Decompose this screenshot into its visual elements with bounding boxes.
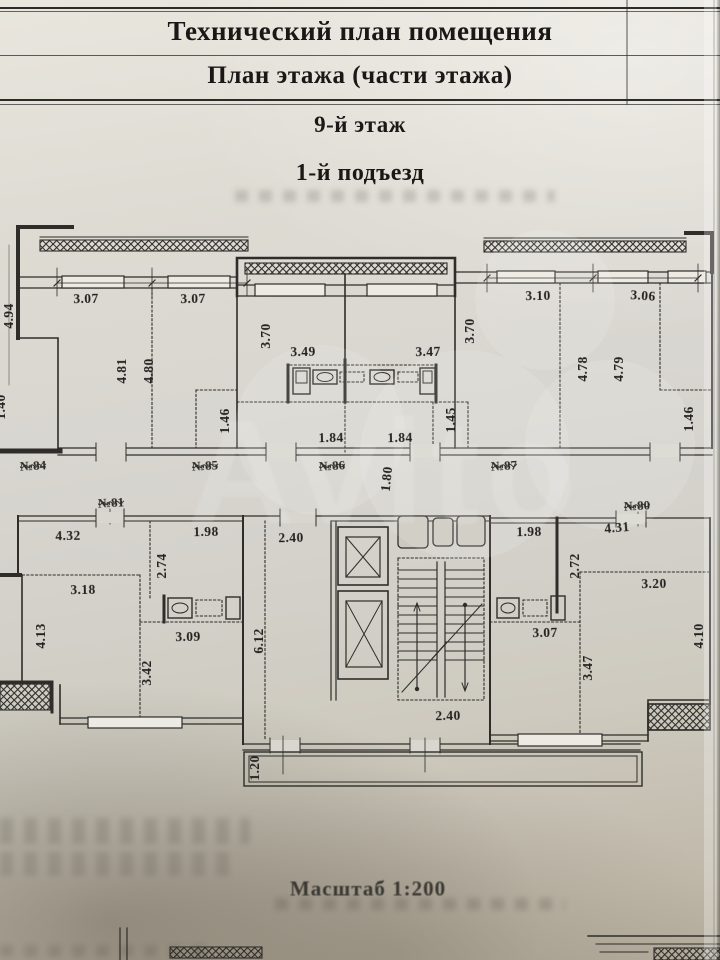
bathroom-fixtures-right: [497, 596, 565, 620]
balcony-strip-left: [40, 237, 248, 251]
window: [598, 271, 648, 283]
dim-label: 3.70: [462, 318, 478, 343]
dim-label: 4.78: [575, 356, 591, 381]
apartment-number: №87: [491, 457, 518, 474]
dim-label: 1.46: [217, 408, 233, 433]
apartment-number: №81: [98, 494, 125, 511]
elevator-shaft-a: [338, 527, 388, 585]
dim-label: 3.20: [641, 576, 667, 592]
dim-label: 3.06: [630, 287, 656, 305]
floor-plan-drawing: [0, 0, 720, 960]
dim-label: 6.12: [251, 628, 267, 653]
dim-label: 3.07: [180, 291, 206, 307]
dim-label: 3.42: [139, 660, 155, 685]
dim-label: 1.40: [0, 394, 9, 419]
dim-label: 1.80: [378, 466, 397, 493]
dim-label: 3.09: [175, 629, 201, 645]
dim-label: 4.80: [141, 358, 157, 383]
balcony-strip-right: [484, 238, 686, 252]
staircase: [398, 558, 484, 700]
dim-label: 3.47: [415, 344, 441, 360]
dim-label: 2.40: [278, 530, 304, 546]
dim-label: 3.70: [258, 323, 274, 348]
bathroom-fixtures-upper: [237, 360, 468, 402]
window: [168, 276, 230, 288]
elevator-shaft-b: [338, 591, 388, 679]
balcony-bottom-right: [648, 704, 710, 730]
dim-label: 1.20: [247, 755, 263, 780]
scanned-floor-plan-page: Технический план помещения План этажа (ч…: [0, 0, 720, 960]
window: [668, 271, 706, 283]
dim-label: 1.98: [193, 524, 219, 540]
dim-label: 3.18: [70, 582, 96, 598]
apartment-number: №85: [192, 457, 219, 474]
bathroom-fixtures-left: [164, 596, 240, 622]
upper-plan: [0, 227, 712, 526]
dim-label: 3.47: [580, 655, 596, 680]
lower-plan: [0, 509, 710, 786]
dim-label: 2.40: [435, 708, 461, 724]
balcony-bottom-left: [0, 682, 52, 712]
apartment-number: №86: [319, 457, 346, 474]
window: [255, 284, 325, 296]
dim-label: 3.07: [532, 625, 558, 641]
balcony-strip-center: [245, 263, 447, 274]
dim-label: 3.49: [290, 344, 316, 360]
dim-label: 3.07: [73, 291, 99, 307]
dim-label: 1.45: [443, 407, 459, 432]
ventilation-shafts: [398, 516, 485, 548]
scale-label: Масштаб 1:200: [290, 877, 446, 902]
dim-label: 1.84: [318, 430, 344, 446]
window: [62, 276, 124, 288]
dim-label: 4.32: [55, 528, 81, 544]
window: [88, 717, 182, 728]
dim-label: 3.10: [525, 288, 551, 304]
adjacent-plan-fragment-left: [120, 928, 262, 960]
dim-label: 1.84: [387, 430, 413, 446]
adjacent-plan-fragment-right: [588, 936, 720, 960]
dim-label: 1.98: [516, 524, 542, 540]
page-edge-shadow: [716, 0, 720, 960]
dim-label: 2.74: [154, 553, 170, 578]
apartment-number: №84: [20, 457, 47, 474]
dim-label: 4.79: [611, 356, 627, 381]
window: [518, 734, 602, 746]
dim-label: 4.31: [604, 519, 631, 537]
window: [497, 271, 555, 283]
dim-label: 4.94: [1, 303, 17, 328]
window: [367, 284, 437, 296]
dim-label: 4.81: [114, 358, 130, 383]
dim-label: 4.13: [33, 623, 49, 648]
apartment-number: №80: [624, 497, 651, 514]
dim-label: 2.72: [567, 553, 583, 578]
dim-label: 1.46: [681, 406, 697, 431]
